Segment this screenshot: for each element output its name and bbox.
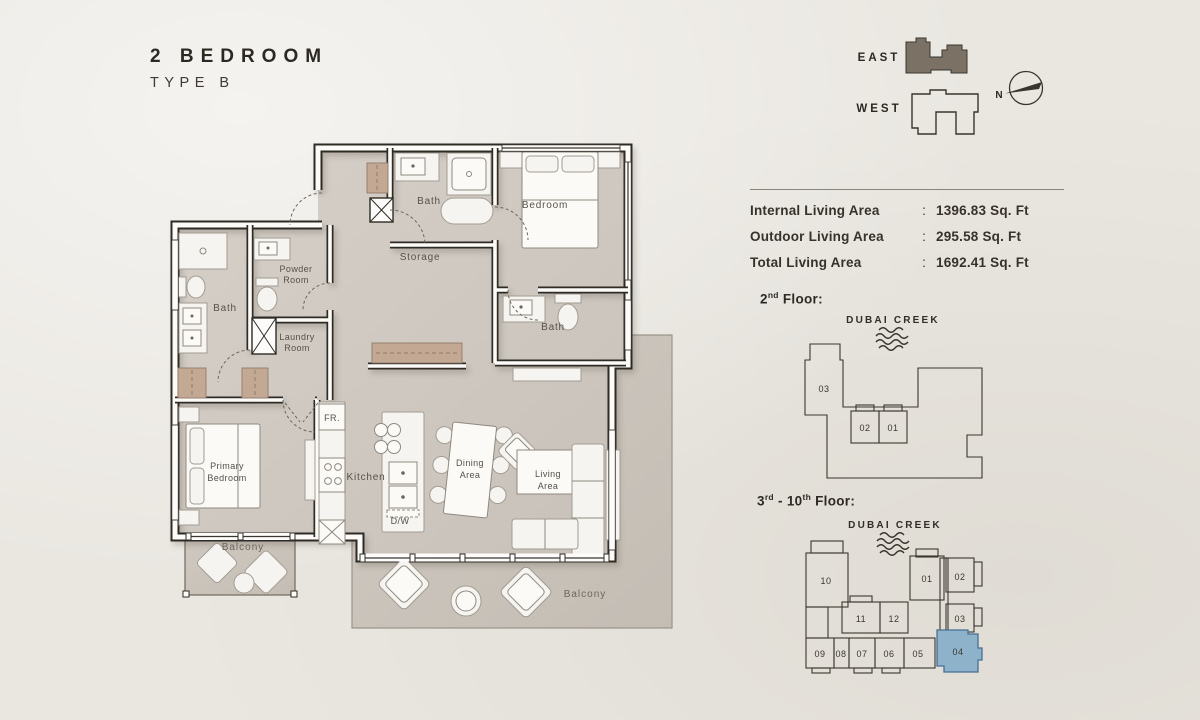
- room-label-primary-1: Primary: [210, 461, 244, 471]
- floor3-creek-label: DUBAI CREEK: [848, 520, 942, 531]
- area-colon: :: [912, 255, 936, 270]
- area-colon: :: [912, 229, 936, 244]
- room-label-storage: Storage: [400, 252, 441, 263]
- plan-canvas: Bath Bedroom Storage Powder Room Bath La…: [0, 0, 1200, 720]
- floorplan-page: Bath Bedroom Storage Powder Room Bath La…: [0, 0, 1200, 720]
- area-value: 295.58 Sq. Ft: [936, 229, 1021, 244]
- floor3-unit-12: 12: [888, 614, 899, 624]
- table-row: Total Living Area : 1692.41 Sq. Ft: [750, 249, 1064, 275]
- kitchen-counter-icon: [319, 402, 345, 544]
- west-building-icon: [912, 90, 978, 134]
- room-label-laundry-2: Room: [284, 343, 310, 353]
- floor2-heading: 2nd Floor:: [760, 290, 823, 307]
- room-label-balcony-main: Balcony: [564, 589, 607, 600]
- floor2-unit-02: 02: [859, 423, 870, 433]
- floor3-unit-11: 11: [856, 614, 866, 624]
- room-label-dishwasher: D/W: [391, 516, 410, 526]
- room-label-laundry-1: Laundry: [279, 332, 314, 342]
- room-label-powder-1: Powder: [280, 264, 313, 274]
- floor3-unit-08: 08: [835, 649, 846, 659]
- room-label-fridge: FR.: [324, 413, 340, 423]
- floor3-unit-09: 09: [814, 649, 825, 659]
- floor2-waves-icon: [876, 328, 908, 351]
- room-label-powder-2: Room: [283, 275, 309, 285]
- floor3-unit-04: 04: [952, 647, 963, 657]
- west-label: WEST: [856, 103, 901, 115]
- floor3-unit-02: 02: [954, 572, 965, 582]
- room-label-living-2: Area: [538, 481, 559, 491]
- compass-north-label: N: [995, 90, 1002, 101]
- floor2-keyplan: DUBAI CREEK 03 02 01: [805, 315, 982, 478]
- room-label-balcony-left: Balcony: [222, 542, 265, 553]
- floor3-unit-07: 07: [856, 649, 867, 659]
- room-label-bedroom: Bedroom: [522, 200, 568, 211]
- floor2-unit-03: 03: [818, 384, 829, 394]
- floor2-unit-01: 01: [887, 423, 898, 433]
- floor3-unit-01: 01: [921, 574, 932, 584]
- compass-icon: N: [995, 72, 1042, 105]
- room-label-dining-2: Area: [460, 470, 481, 480]
- plan-title-line2: TYPE B: [150, 75, 328, 91]
- room-label-bath-left: Bath: [213, 303, 237, 314]
- plan-title: 2 BEDROOM TYPE B: [150, 46, 328, 91]
- elevator-shaft-icon: [252, 318, 276, 354]
- floor3-waves-icon: [877, 533, 909, 556]
- area-table: Internal Living Area : 1396.83 Sq. Ft Ou…: [750, 189, 1064, 275]
- floor3-unit-10: 10: [820, 576, 831, 586]
- floor3-keyplan: DUBAI CREEK: [806, 520, 982, 673]
- plan-title-line1: 2 BEDROOM: [150, 46, 328, 68]
- room-label-living-1: Living: [535, 469, 561, 479]
- area-label: Total Living Area: [750, 255, 912, 270]
- room-label-bath-top: Bath: [417, 196, 441, 207]
- area-label: Internal Living Area: [750, 203, 912, 218]
- floor3-unit-06: 06: [883, 649, 894, 659]
- table-row: Internal Living Area : 1396.83 Sq. Ft: [750, 197, 1064, 223]
- area-label: Outdoor Living Area: [750, 229, 912, 244]
- table-row: Outdoor Living Area : 295.58 Sq. Ft: [750, 223, 1064, 249]
- area-value: 1396.83 Sq. Ft: [936, 203, 1029, 218]
- floor3-unit-03: 03: [954, 614, 965, 624]
- room-label-dining-1: Dining: [456, 458, 484, 468]
- duct-shaft-icon: [370, 198, 393, 222]
- east-label: EAST: [858, 52, 901, 64]
- area-value: 1692.41 Sq. Ft: [936, 255, 1029, 270]
- room-label-bath-ensuite: Bath: [541, 322, 565, 333]
- room-label-kitchen: Kitchen: [347, 472, 386, 483]
- floor3-heading: 3rd - 10th Floor:: [757, 492, 855, 509]
- east-building-icon: [906, 38, 967, 73]
- floor3-unit-05: 05: [912, 649, 923, 659]
- room-label-primary-2: Bedroom: [207, 473, 246, 483]
- area-colon: :: [912, 203, 936, 218]
- floor2-creek-label: DUBAI CREEK: [846, 315, 940, 326]
